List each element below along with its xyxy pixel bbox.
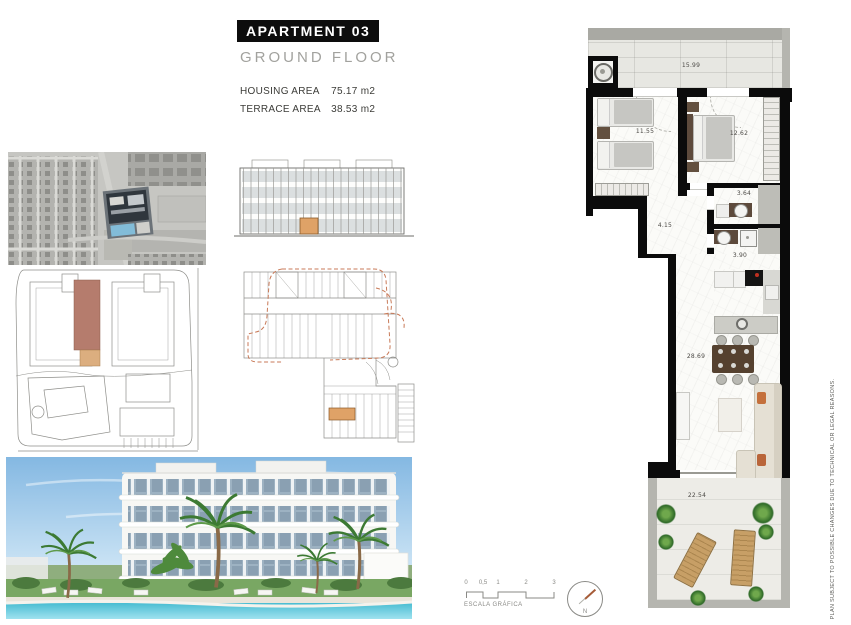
housing-area-line: HOUSING AREA 75.17 m2 [240,86,375,97]
scale-tick: 0 [464,580,467,586]
concrete-wall [588,28,790,40]
terrace-area-label: TERRACE AREA [240,104,328,115]
kitchen-cabinet [714,271,734,288]
toilet-icon [734,204,748,218]
highlighted-building [103,187,154,240]
north-needle-icon [584,589,596,600]
single-bed-icon [597,141,654,170]
washing-machine-icon [594,63,613,82]
area-label-hallway: 4.15 [645,222,685,229]
plant-icon [748,586,764,602]
wardrobe-icon [595,183,649,196]
door-opening [707,88,749,97]
plan-sheet: APARTMENT 03 GROUND FLOOR HOUSING AREA 7… [0,0,851,625]
floor-title: GROUND FLOOR [240,49,399,66]
area-label-bedroom-2: 12.62 [709,130,769,137]
building-render-photo [6,457,412,619]
scale-tick: 0,5 [479,580,487,586]
door-opening [633,88,677,97]
unit-boundary-overlay [248,269,404,362]
pillow-icon [757,454,766,466]
plant-icon [752,502,774,524]
pillow-icon [757,392,766,404]
apartment-title: APARTMENT 03 [237,20,379,42]
double-bed-icon [693,115,735,162]
chair-icon [716,374,727,385]
area-label-bathroom-2: 3.90 [720,252,760,259]
highlighted-storage-room [329,408,355,420]
plant-icon [658,534,674,550]
terrace-area-line: TERRACE AREA 38.53 m2 [240,104,375,115]
nightstand-icon [687,162,699,172]
nightstand-icon [687,102,699,112]
sink-icon [717,231,731,245]
scale-bar-label: ESCALA GRÁFICA [464,602,523,608]
housing-area-value: 75.17 m2 [331,86,375,97]
highlighted-unit-strip-light [80,350,100,366]
area-label-terrace-bottom: 22.54 [675,492,719,499]
area-label-terrace-top: 15.99 [661,62,721,69]
terrace-curb [648,600,790,608]
sofa-chaise-icon [736,450,756,480]
cooktop-icon [745,270,763,286]
dining-table-icon [712,345,754,373]
aerial-photo [8,152,206,265]
area-label-bedroom-1: 11.55 [615,128,675,135]
wall [661,470,680,478]
site-plan-drawing [8,262,206,454]
garage-plan-drawing [226,258,428,463]
scale-bar: 0 0,5 1 2 3 ESCALA GRÁFICA [458,580,578,616]
housing-area-label: HOUSING AREA [240,86,328,97]
plant-icon [758,524,774,540]
terrace-area-value: 38.53 m2 [331,104,375,115]
wall [586,196,650,209]
area-label-living-kitchen: 28.69 [674,353,718,360]
sun-lounger-icon [730,529,756,586]
north-label: N [568,609,602,615]
sink-icon [716,204,730,218]
building-elevation-drawing [228,148,420,240]
wall [668,254,676,470]
highlighted-unit-elevation [300,218,318,234]
highlighted-unit-strip-dark [74,280,100,350]
single-bed-icon [597,98,654,127]
door-opening [707,234,714,248]
north-indicator: N [567,581,603,617]
sofa-icon [754,383,782,483]
concrete-wall [782,28,790,88]
shower-icon [740,230,757,247]
chair-icon [732,374,743,385]
scale-tick: 2 [524,580,527,586]
terrace-curb [648,478,657,608]
area-label-bathroom-1: 3.64 [724,190,764,197]
door-opening [707,196,714,210]
terrace-curb [781,478,790,608]
nightstand-icon [597,127,610,139]
wardrobe-icon [763,97,780,181]
sink-icon [736,318,748,330]
coffee-table-icon [718,398,742,432]
wall [678,97,687,200]
north-needle-tail [579,598,586,604]
kitchen-counter [763,270,780,314]
tv-unit-icon [676,392,690,440]
disclaimer-text: PLAN SUBJECT TO POSSIBLE CHANGES DUE TO … [830,369,836,625]
plant-icon [690,590,706,606]
scale-tick: 1 [496,580,499,586]
plant-icon [656,504,676,524]
apartment-floor-plan: 15.99 [586,26,796,610]
scale-tick: 3 [552,580,555,586]
scale-bar-line [466,589,558,601]
